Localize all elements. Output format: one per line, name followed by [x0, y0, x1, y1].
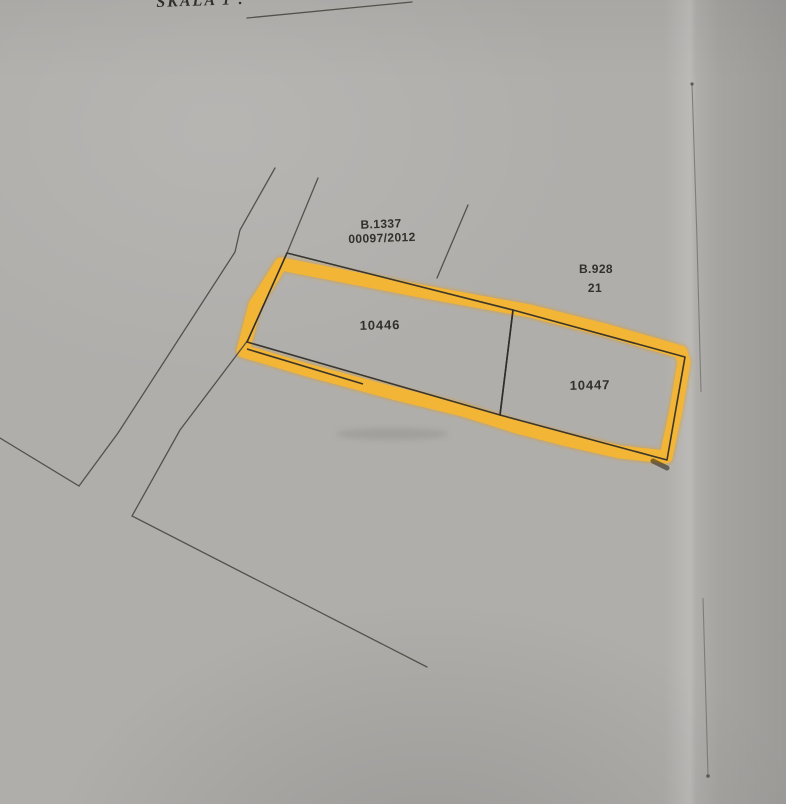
parcel-10446-double-bottom-line	[247, 349, 363, 384]
erased-text-smudge	[336, 428, 448, 440]
region-code-b1337: B.1337	[360, 216, 402, 231]
road-line-outer	[0, 168, 275, 486]
region-code-b928: B.928	[579, 262, 613, 276]
crease-dot-top	[690, 82, 693, 85]
parcel-number-10446: 10446	[360, 317, 401, 333]
region-divider-line	[437, 205, 468, 278]
parcel-number-10447: 10447	[570, 377, 611, 393]
survey-drawing	[0, 0, 786, 804]
region-number-21: 21	[588, 281, 602, 295]
paper-crease-lower	[703, 598, 708, 775]
scale-underline	[247, 2, 412, 18]
crease-dot-bottom	[706, 774, 710, 778]
region-number-00097-2012: 00097/2012	[348, 230, 416, 246]
road-line-inner	[132, 178, 427, 667]
paper-crease-upper	[692, 83, 701, 392]
cadastral-map-photo: SKALA 1 : B.1337 00097/2012 B.928 21 104…	[0, 0, 786, 804]
